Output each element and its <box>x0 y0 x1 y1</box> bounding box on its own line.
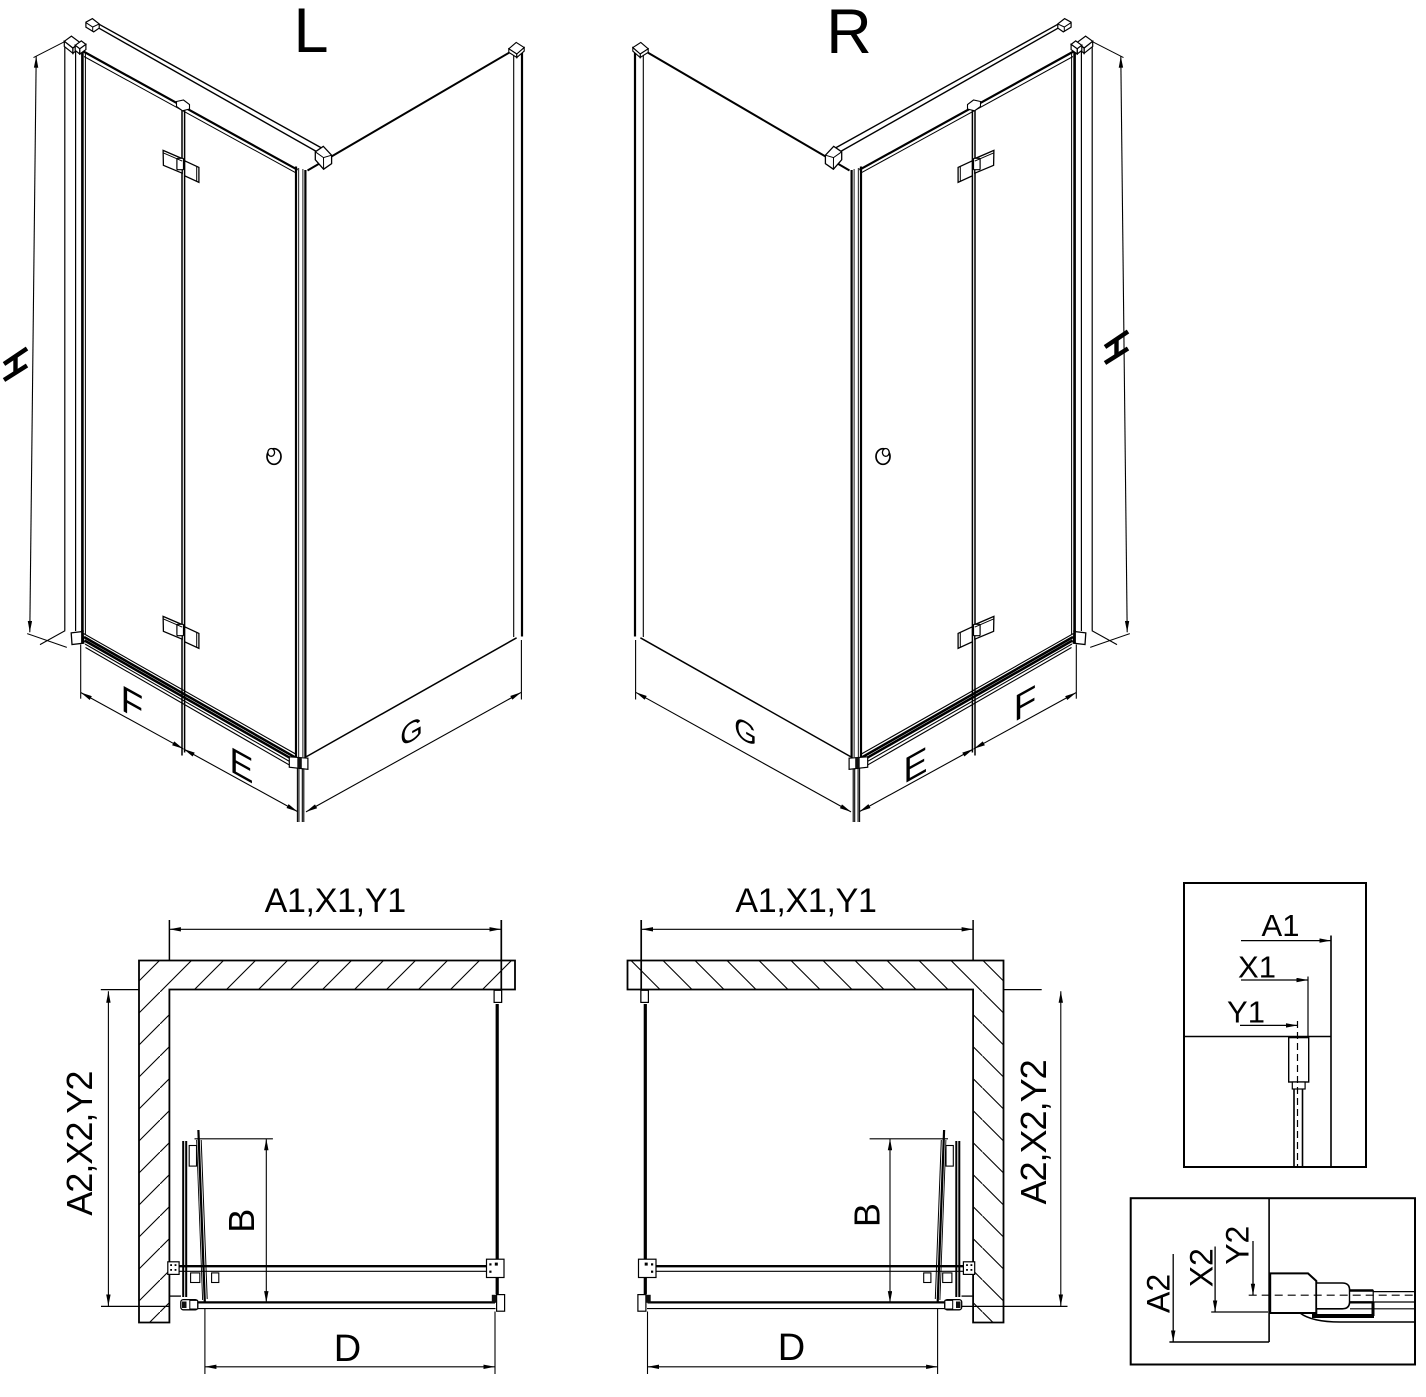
svg-text:D: D <box>334 1328 361 1370</box>
svg-text:Y2: Y2 <box>1220 1226 1256 1265</box>
svg-text:R: R <box>826 0 872 67</box>
svg-text:A2,X2,Y2: A2,X2,Y2 <box>1013 1060 1054 1204</box>
svg-text:X1: X1 <box>1238 950 1276 985</box>
svg-text:A1,X1,Y1: A1,X1,Y1 <box>735 882 876 920</box>
svg-text:X2: X2 <box>1183 1248 1219 1287</box>
svg-text:D: D <box>778 1327 805 1369</box>
svg-text:A1,X1,Y1: A1,X1,Y1 <box>265 882 406 920</box>
svg-text:L: L <box>293 0 328 66</box>
svg-text:A2: A2 <box>1140 1274 1176 1313</box>
svg-text:Y1: Y1 <box>1227 995 1265 1030</box>
svg-text:A2,X2,Y2: A2,X2,Y2 <box>59 1072 100 1216</box>
svg-text:B: B <box>846 1203 887 1227</box>
svg-text:B: B <box>221 1209 262 1233</box>
svg-text:A1: A1 <box>1262 908 1300 943</box>
